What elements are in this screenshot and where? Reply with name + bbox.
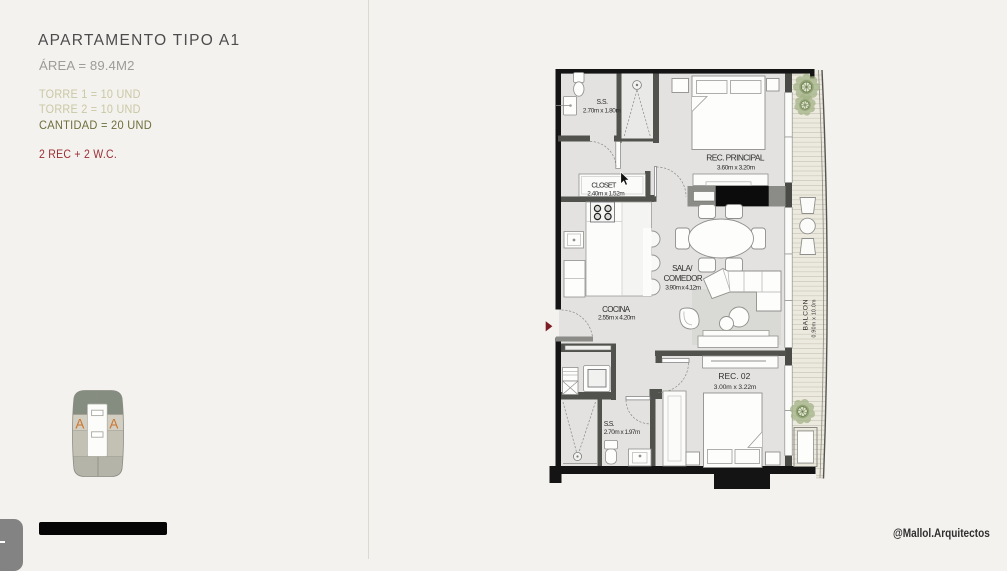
- svg-text:REC. 02: REC. 02: [718, 371, 750, 381]
- svg-text:2.70m x 1.97m: 2.70m x 1.97m: [604, 429, 641, 436]
- svg-text:3.90m x 4.12m: 3.90m x 4.12m: [665, 285, 701, 292]
- svg-text:A: A: [109, 417, 118, 432]
- svg-text:REC. PRINCIPAL: REC. PRINCIPAL: [706, 153, 765, 163]
- svg-text:2.70m x 1.80m: 2.70m x 1.80m: [583, 107, 621, 114]
- svg-text:BALCON: BALCON: [803, 299, 810, 330]
- svg-text:A: A: [75, 417, 84, 432]
- svg-text:3.00m x 3.22m: 3.00m x 3.22m: [714, 384, 757, 391]
- svg-text:2.55m x 4.20m: 2.55m x 4.20m: [598, 315, 636, 322]
- svg-text:COCINA: COCINA: [602, 305, 631, 314]
- svg-text:S.S.: S.S.: [597, 99, 609, 106]
- svg-text:0.90m x 10.0m: 0.90m x 10.0m: [812, 300, 818, 338]
- svg-text:CLOSET: CLOSET: [591, 180, 616, 189]
- svg-text:COMEDOR: COMEDOR: [664, 274, 703, 283]
- svg-text:3.60m x 3.20m: 3.60m x 3.20m: [717, 164, 756, 171]
- svg-text:2.40m x 1.52m: 2.40m x 1.52m: [587, 190, 625, 197]
- svg-text:SALA/: SALA/: [672, 264, 693, 273]
- svg-text:S.S.: S.S.: [604, 421, 615, 428]
